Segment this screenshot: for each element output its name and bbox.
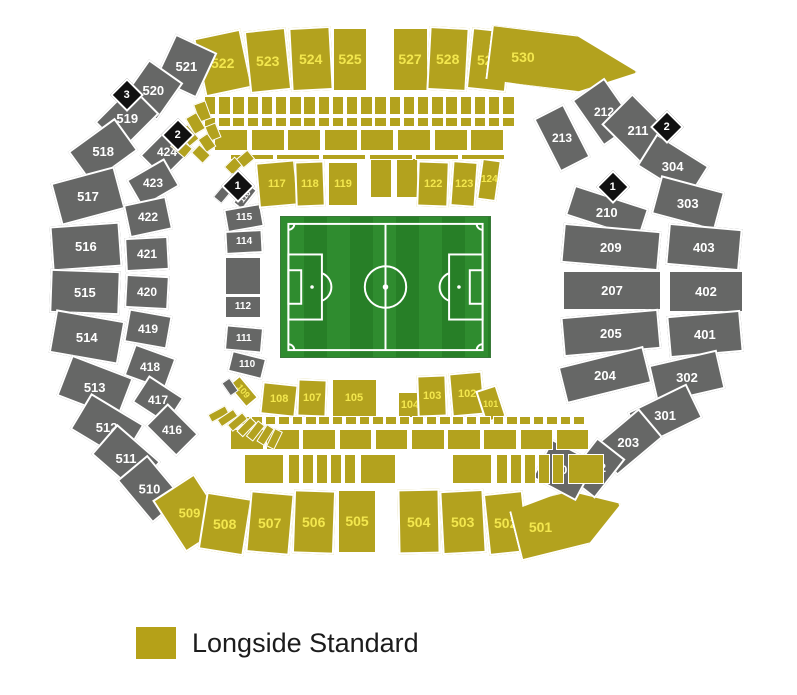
section-label-511: 511: [116, 451, 137, 464]
section-119[interactable]: 119: [327, 161, 359, 207]
section-label-416: 416: [162, 424, 182, 436]
seat-block: [479, 416, 491, 425]
section-label-506: 506: [302, 515, 325, 529]
section-514[interactable]: 514: [49, 309, 126, 364]
section-504[interactable]: 504: [397, 488, 440, 554]
section-label-102: 102: [458, 389, 476, 400]
section-label-210: 210: [596, 205, 618, 218]
seat-block: [278, 416, 290, 425]
seat-block: [417, 96, 429, 115]
section-123[interactable]: 123: [449, 160, 478, 208]
section-124[interactable]: 124: [476, 158, 502, 202]
pitch: [280, 216, 491, 358]
seat-block: [385, 416, 397, 425]
seat-block: [434, 129, 468, 151]
section-label-501: 501: [529, 520, 552, 534]
pitch-markings: [281, 217, 490, 357]
seat-block: [218, 96, 230, 115]
section-label-504: 504: [407, 514, 430, 528]
section-label-515: 515: [74, 285, 96, 298]
section-label-519: 519: [116, 112, 138, 125]
section-label-509: 509: [179, 506, 201, 519]
section-111[interactable]: 111: [224, 324, 264, 353]
section-205[interactable]: 205: [560, 309, 661, 357]
section-118[interactable]: 118: [294, 160, 326, 207]
section-label-503: 503: [451, 515, 474, 529]
section-label-103: 103: [423, 391, 441, 402]
section-110[interactable]: 110: [227, 350, 267, 380]
seat-block: [339, 429, 373, 450]
section-528[interactable]: 528: [426, 26, 469, 92]
section-527[interactable]: 527: [392, 27, 429, 92]
section-label-205: 205: [600, 327, 622, 340]
section-515[interactable]: 515: [49, 269, 120, 315]
section-label-118: 118: [301, 179, 319, 190]
seat-block: [568, 454, 604, 484]
gate-marker-label: 2: [175, 130, 181, 141]
seat-block: [415, 154, 459, 160]
seat-block: [288, 454, 300, 484]
seat-block: [261, 96, 273, 115]
section-label-508: 508: [213, 517, 236, 531]
section-label-110: 110: [239, 360, 255, 370]
section-label-518: 518: [92, 145, 114, 158]
section-506[interactable]: 506: [292, 489, 336, 554]
section-label-301: 301: [654, 409, 676, 422]
seat-block: [533, 416, 545, 425]
section-403[interactable]: 403: [665, 223, 742, 271]
section-label-524: 524: [299, 52, 322, 66]
seat-block: [292, 416, 304, 425]
seat-block: [303, 96, 315, 115]
section-label-112: 112: [235, 302, 251, 312]
seat-block: [417, 117, 429, 127]
seat-block: [524, 454, 536, 484]
seat-block: [560, 416, 572, 425]
section-label-514: 514: [76, 330, 98, 343]
seat-block: [556, 429, 590, 450]
seat-block: [474, 96, 486, 115]
seat-block: [488, 117, 500, 127]
seat-block: [389, 96, 401, 115]
seat-block: [470, 129, 504, 151]
section-label-302: 302: [676, 371, 698, 384]
seat-block: [261, 117, 273, 127]
seat-block: [496, 454, 508, 484]
seat-block: [344, 454, 356, 484]
section-label-117: 117: [268, 179, 286, 190]
seat-block: [552, 454, 564, 484]
seat-block: [519, 416, 531, 425]
section-503[interactable]: 503: [439, 489, 486, 555]
section-label-123: 123: [455, 178, 473, 189]
seat-block: [374, 96, 386, 115]
section-label-209: 209: [600, 240, 622, 253]
seat-block: [360, 117, 372, 127]
seat-block: [452, 454, 492, 484]
seat-block: [447, 429, 481, 450]
section-523[interactable]: 523: [244, 26, 292, 93]
section-label-211: 211: [628, 123, 649, 136]
seat-block: [520, 429, 554, 450]
section-402[interactable]: 402: [668, 270, 744, 313]
seat-block: [218, 117, 230, 127]
section-114[interactable]: 114: [224, 229, 263, 255]
seat-block: [372, 416, 384, 425]
seat-block: [287, 129, 321, 151]
seat-block: [399, 416, 411, 425]
section-105[interactable]: 105: [331, 378, 378, 418]
section-103[interactable]: 103: [416, 374, 447, 417]
seat-block: [330, 454, 342, 484]
seat-block: [324, 129, 358, 151]
section-label-403: 403: [693, 240, 715, 253]
section-label-523: 523: [256, 53, 279, 67]
section-209[interactable]: 209: [560, 223, 661, 271]
seat-block: [318, 96, 330, 115]
seat-block: [345, 416, 357, 425]
seat-block: [275, 96, 287, 115]
section-505[interactable]: 505: [337, 489, 377, 554]
section-121: [395, 157, 419, 199]
section-label-204: 204: [594, 369, 616, 382]
section-label-401: 401: [694, 328, 716, 341]
section-label-303: 303: [677, 196, 699, 209]
section-419[interactable]: 419: [123, 308, 172, 349]
seat-block: [389, 117, 401, 127]
seat-block: [346, 117, 358, 127]
legend-swatch-longside-standard: [136, 627, 176, 659]
seat-block: [431, 117, 443, 127]
section-label-530: 530: [512, 50, 535, 64]
seat-block: [322, 154, 366, 160]
section-label-108: 108: [270, 393, 288, 404]
seat-block: [318, 117, 330, 127]
seat-block: [538, 454, 550, 484]
seat-block: [289, 96, 301, 115]
section-label-111: 111: [236, 334, 252, 344]
seat-block: [546, 416, 558, 425]
section-120: [369, 157, 393, 199]
section-label-107: 107: [303, 392, 321, 403]
seat-block: [346, 96, 358, 115]
seat-block: [232, 96, 244, 115]
section-label-402: 402: [695, 285, 717, 298]
seat-block: [276, 154, 320, 160]
section-label-517: 517: [77, 190, 99, 203]
seat-block: [506, 416, 518, 425]
seat-block: [374, 117, 386, 127]
gate-marker-label: 3: [124, 90, 130, 101]
section-label-421: 421: [137, 248, 157, 260]
seat-block: [302, 454, 314, 484]
gate-marker-label: 1: [235, 181, 241, 192]
section-label-115: 115: [236, 213, 252, 223]
section-label-203: 203: [617, 436, 639, 449]
section-label-101: 101: [483, 400, 498, 409]
seat-block: [488, 96, 500, 115]
section-508[interactable]: 508: [198, 492, 253, 556]
seat-block: [332, 416, 344, 425]
section-108[interactable]: 108: [259, 381, 298, 418]
seat-block: [452, 416, 464, 425]
seat-block: [316, 454, 328, 484]
section-label-510: 510: [139, 482, 161, 495]
section-label-419: 419: [138, 323, 158, 335]
seat-block: [244, 454, 284, 484]
section-516[interactable]: 516: [50, 221, 123, 271]
section-label-516: 516: [75, 240, 97, 253]
seat-block: [573, 416, 585, 425]
section-label-423: 423: [143, 177, 163, 189]
section-label-422: 422: [138, 211, 158, 223]
section-label-119: 119: [334, 179, 352, 190]
stadium-seat-map: Longside Standard 5225235245255275285295…: [0, 0, 797, 695]
seat-block: [305, 416, 317, 425]
section-label-528: 528: [436, 52, 459, 66]
section-107[interactable]: 107: [296, 378, 327, 417]
section-507[interactable]: 507: [245, 490, 294, 556]
seat-block: [302, 429, 336, 450]
section-117[interactable]: 117: [255, 159, 299, 208]
seat-block: [510, 454, 522, 484]
seat-block: [275, 117, 287, 127]
section-label-507: 507: [258, 516, 281, 530]
section-label-513: 513: [84, 380, 106, 393]
section-401[interactable]: 401: [666, 310, 743, 358]
seat-block: [445, 96, 457, 115]
seat-block: [466, 416, 478, 425]
section-303[interactable]: 303: [651, 175, 725, 231]
section-label-124: 124: [481, 175, 498, 185]
seat-block: [411, 429, 445, 450]
seat-block: [431, 96, 443, 115]
section-label-304: 304: [662, 159, 684, 172]
seat-block: [403, 117, 415, 127]
section-label-207: 207: [601, 284, 623, 297]
section-label-213: 213: [552, 132, 572, 144]
seat-block: [232, 117, 244, 127]
seat-block: [303, 117, 315, 127]
section-207[interactable]: 207: [562, 270, 662, 311]
seat-block: [251, 129, 285, 151]
section-label-525: 525: [338, 52, 361, 66]
seat-block: [502, 117, 514, 127]
section-label-505: 505: [345, 514, 368, 528]
section-113: [224, 256, 262, 296]
section-525[interactable]: 525: [332, 27, 368, 92]
seat-block: [426, 416, 438, 425]
seat-block: [289, 117, 301, 127]
seat-block: [247, 117, 259, 127]
seat-block: [360, 454, 396, 484]
section-122[interactable]: 122: [416, 160, 450, 207]
section-420[interactable]: 420: [124, 274, 170, 310]
seat-block: [359, 416, 371, 425]
seat-block: [460, 96, 472, 115]
seat-block: [502, 96, 514, 115]
seat-block: [439, 416, 451, 425]
section-label-527: 527: [398, 52, 421, 66]
legend-label: Longside Standard: [192, 626, 419, 660]
section-530[interactable]: 530: [485, 24, 641, 100]
section-label-122: 122: [424, 178, 442, 189]
section-label-418: 418: [140, 361, 160, 373]
section-label-520: 520: [142, 84, 164, 97]
seat-block: [318, 416, 330, 425]
section-422[interactable]: 422: [123, 196, 173, 238]
seat-block: [360, 96, 372, 115]
seat-block: [461, 154, 505, 160]
seat-block: [483, 429, 517, 450]
section-label-105: 105: [345, 393, 363, 404]
section-112[interactable]: 112: [224, 295, 262, 319]
section-517[interactable]: 517: [50, 166, 125, 226]
legend: Longside Standard: [136, 626, 419, 660]
section-524[interactable]: 524: [288, 26, 333, 92]
seat-block: [247, 96, 259, 115]
seat-block: [460, 117, 472, 127]
gate-marker-label: 2: [664, 122, 670, 133]
section-421[interactable]: 421: [124, 236, 170, 272]
section-label-521: 521: [175, 60, 197, 73]
seat-block: [493, 416, 505, 425]
seat-block: [397, 129, 431, 151]
seat-block: [375, 429, 409, 450]
seat-block: [332, 117, 344, 127]
section-label-420: 420: [137, 286, 157, 298]
seat-block: [403, 96, 415, 115]
seat-block: [369, 154, 413, 160]
section-label-114: 114: [236, 237, 252, 247]
seat-block: [412, 416, 424, 425]
seat-block: [445, 117, 457, 127]
seat-block: [474, 117, 486, 127]
seat-block: [360, 129, 394, 151]
seat-block: [332, 96, 344, 115]
gate-marker-label: 1: [610, 182, 616, 193]
